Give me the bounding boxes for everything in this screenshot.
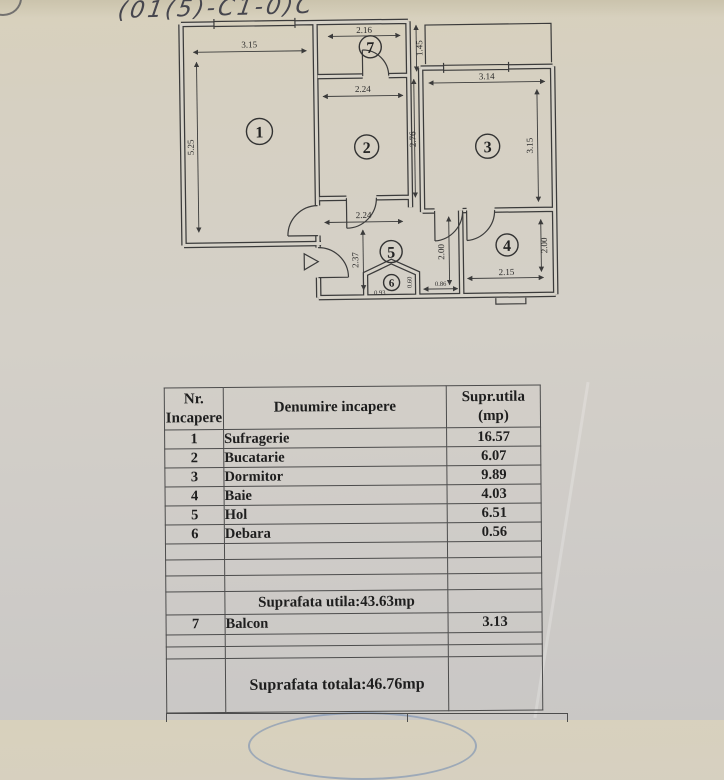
svg-text:4: 4 <box>503 238 511 255</box>
areas-table-container: Nr. Incapere Denumire incapere Supr.util… <box>164 385 544 714</box>
room-name: Balcon <box>225 613 448 635</box>
rooms-table: Nr. Incapere Denumire incapere Supr.util… <box>164 385 544 714</box>
room-nr: 2 <box>165 449 224 468</box>
dim-kitchen-width: 2.24 <box>355 84 371 94</box>
dim-hall-width: 2.24 <box>356 210 372 220</box>
room-area: 4.03 <box>447 484 541 504</box>
door-living-room <box>288 206 318 236</box>
room-area: 6.51 <box>447 503 541 523</box>
door-entry <box>318 247 348 277</box>
dim-line-corridor-height <box>449 217 450 285</box>
header-suprafata: Supr.utila (mp) <box>446 385 540 428</box>
dim-line-hall-width <box>325 221 403 222</box>
room-label-bath: 4 <box>496 234 518 256</box>
header-nr-incapere: Nr. Incapere <box>164 388 223 430</box>
window-bedroom <box>444 62 509 73</box>
room-area: 9.89 <box>447 465 541 485</box>
dim-bath-width: 2.15 <box>499 267 515 277</box>
dim-line-living-width <box>193 51 306 53</box>
dim-line-bath-width <box>468 277 544 278</box>
dim-line-living-height <box>196 62 198 232</box>
scanned-apartment-plan-page: { "annotation": { "handwriting": "(01(5)… <box>0 0 724 720</box>
dim-hall-height: 2.37 <box>350 252 360 268</box>
room-name: Baie <box>224 485 447 506</box>
subtotal-label: Suprafata utila:43.63mp <box>225 590 448 615</box>
total-label: Suprafata totala:46.76mp <box>225 657 448 713</box>
dim-corridor-gap: 0.86 <box>435 281 447 288</box>
room-area: 0.56 <box>447 522 541 542</box>
room-area: 6.07 <box>447 446 541 466</box>
svg-text:6: 6 <box>389 278 395 290</box>
next-table-divider <box>407 714 408 722</box>
bath-wall-notch <box>496 298 526 304</box>
room-label-bedroom: 3 <box>476 134 500 158</box>
room-name: Bucatarie <box>224 447 447 468</box>
door-bath <box>467 210 495 240</box>
floor-plan: 3.15 5.25 2.16 1.45 2.24 2.76 3.14 3.15 … <box>148 9 572 325</box>
svg-text:5: 5 <box>387 245 395 262</box>
room-name: Debara <box>224 523 447 544</box>
room-name: Sufragerie <box>224 428 447 449</box>
total-row: Suprafata totala:46.76mp <box>166 656 542 713</box>
dim-bath-height: 2.00 <box>539 237 549 253</box>
room-nr: 4 <box>165 487 224 506</box>
room-name: Hol <box>224 504 447 525</box>
room-nr: 5 <box>165 506 224 525</box>
table-header-row: Nr. Incapere Denumire incapere Supr.util… <box>164 385 540 430</box>
room-label-pantry: 6 <box>383 274 399 290</box>
terrace-outline <box>425 23 552 64</box>
dim-pantry-height: 0.60 <box>407 277 414 288</box>
room-area: 16.57 <box>447 427 541 447</box>
floor-plan-container: 3.15 5.25 2.16 1.45 2.24 2.76 3.14 3.15 … <box>148 9 572 330</box>
dim-line-bedroom-width <box>429 81 545 83</box>
room-nr: 7 <box>166 615 225 635</box>
header-denumire: Denumire incapere <box>223 386 446 430</box>
room-label-hall: 5 <box>380 240 402 262</box>
dim-bedroom-width: 3.14 <box>479 71 495 81</box>
dim-line-bedroom-height <box>537 90 539 202</box>
svg-text:3: 3 <box>484 139 492 156</box>
svg-text:1: 1 <box>255 124 263 141</box>
room-name: Dormitor <box>224 466 447 487</box>
room-label-kitchen: 2 <box>355 135 379 159</box>
subtotal-row: Suprafata utila:43.63mp <box>166 589 542 615</box>
svg-text:7: 7 <box>366 40 374 57</box>
dim-line-kitchen-width <box>323 95 403 96</box>
entry-arrow-icon <box>304 254 318 270</box>
room-label-balcony: 7 <box>359 36 381 58</box>
dim-balcony-width: 2.16 <box>356 25 372 35</box>
room-label-living: 1 <box>246 118 272 144</box>
room-area: 3.13 <box>448 612 542 633</box>
dim-balcony-height: 1.45 <box>414 40 424 56</box>
svg-text:2: 2 <box>363 140 371 157</box>
dim-line-balcony-width <box>328 35 400 36</box>
room-nr: 1 <box>165 430 224 449</box>
next-table-fragment <box>166 713 568 722</box>
room-nr: 3 <box>165 468 224 487</box>
room-nr: 6 <box>165 525 224 544</box>
dim-bedroom-height: 3.15 <box>525 137 535 153</box>
dim-corridor-height: 2.00 <box>436 243 446 259</box>
dim-living-width: 3.15 <box>241 39 257 49</box>
dim-living-height: 5.25 <box>186 139 196 155</box>
dim-pantry-width: 0.93 <box>374 290 385 297</box>
window-living-room <box>214 18 295 29</box>
dim-kitchen-height: 2.76 <box>407 131 417 147</box>
stamp-ellipse <box>248 712 477 780</box>
